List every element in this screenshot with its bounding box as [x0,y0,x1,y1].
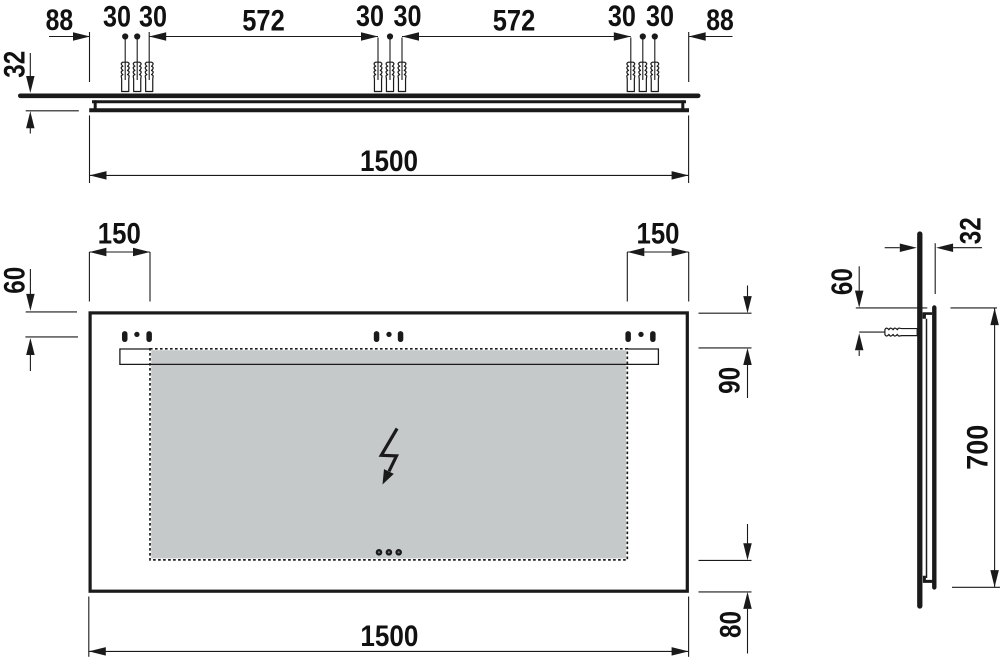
svg-text:572: 572 [242,4,285,37]
svg-text:30: 30 [646,0,674,33]
svg-text:88: 88 [46,4,74,37]
svg-text:30: 30 [394,0,422,33]
svg-text:32: 32 [954,217,987,244]
svg-text:30: 30 [356,0,384,33]
svg-text:80: 80 [714,611,747,638]
svg-text:150: 150 [637,218,680,251]
svg-text:88: 88 [706,4,734,37]
svg-text:60: 60 [826,268,859,295]
svg-text:572: 572 [493,4,536,37]
svg-text:30: 30 [103,0,131,33]
svg-text:700: 700 [962,425,995,470]
svg-text:1500: 1500 [360,620,418,653]
svg-text:30: 30 [608,0,636,33]
svg-text:150: 150 [98,218,141,251]
svg-text:32: 32 [0,51,32,78]
svg-text:90: 90 [714,367,747,394]
svg-text:1500: 1500 [360,145,418,178]
svg-text:30: 30 [139,0,167,33]
svg-text:60: 60 [0,267,32,294]
